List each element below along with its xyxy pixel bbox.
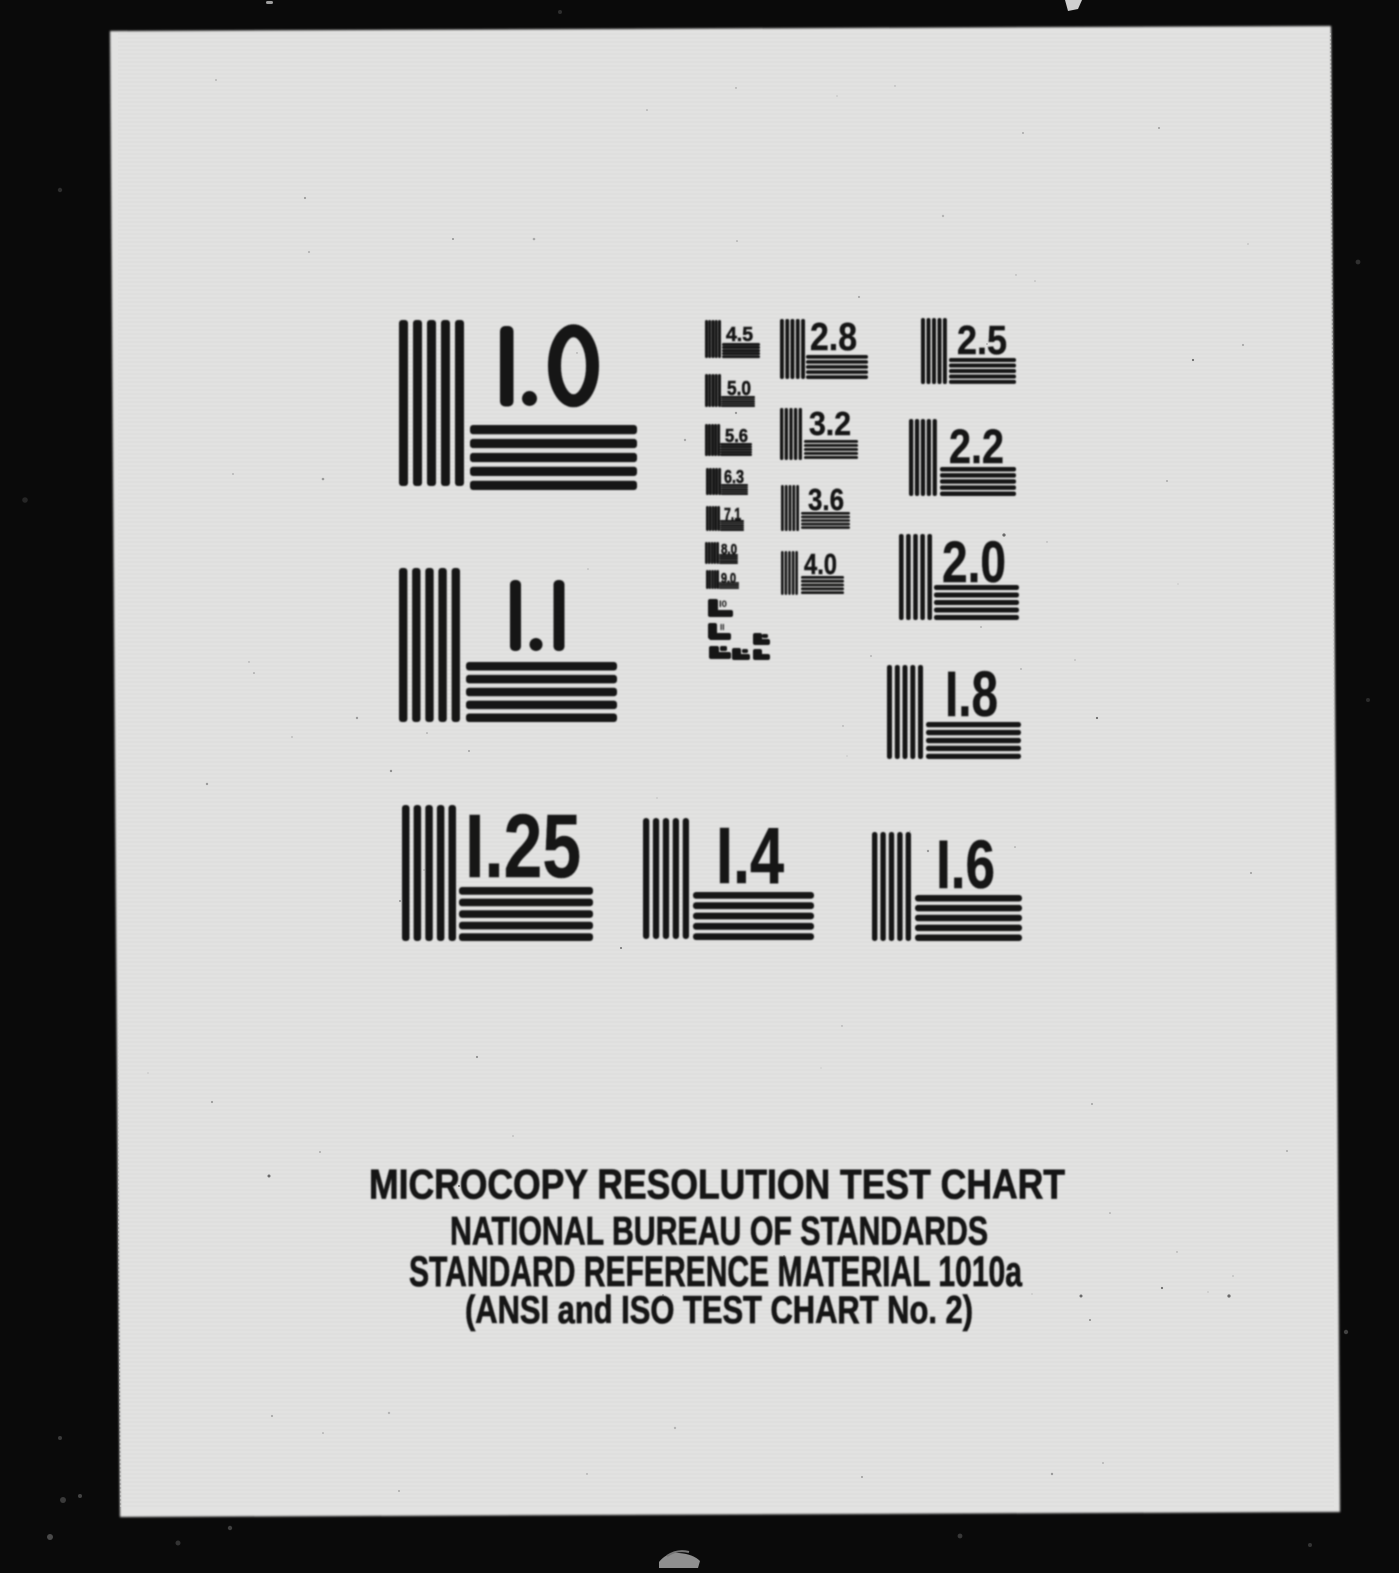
svg-text:9.0: 9.0 [721,571,736,587]
svg-text:I.4: I.4 [716,811,784,900]
svg-text:5.6: 5.6 [725,426,748,447]
svg-text:2.5: 2.5 [957,317,1007,363]
svg-text:NATIONAL BUREAU OF STANDARDS: NATIONAL BUREAU OF STANDARDS [450,1210,988,1254]
svg-text:I0: I0 [719,599,727,610]
svg-text:II: II [720,623,724,632]
svg-text:4.5: 4.5 [726,324,753,346]
svg-text:3.6: 3.6 [808,483,844,517]
svg-text:2.2: 2.2 [949,421,1004,474]
svg-text:(ANSI and ISO TEST CHART No. 2: (ANSI and ISO TEST CHART No. 2) [465,1289,973,1332]
svg-text:2.8: 2.8 [810,316,857,359]
svg-text:4.0: 4.0 [804,549,837,581]
svg-text:6.3: 6.3 [724,467,744,488]
svg-text:8.0: 8.0 [721,542,737,558]
svg-text:5.0: 5.0 [727,378,751,400]
svg-text:7.1: 7.1 [724,504,741,524]
svg-text:3.2: 3.2 [809,406,851,443]
svg-text:I.6: I.6 [936,827,995,903]
svg-text:I.8: I.8 [945,658,998,730]
svg-text:MICROCOPY RESOLUTION TEST CHAR: MICROCOPY RESOLUTION TEST CHART [369,1162,1065,1208]
svg-text:I.25: I.25 [465,796,581,897]
svg-text:2.0: 2.0 [942,530,1006,595]
